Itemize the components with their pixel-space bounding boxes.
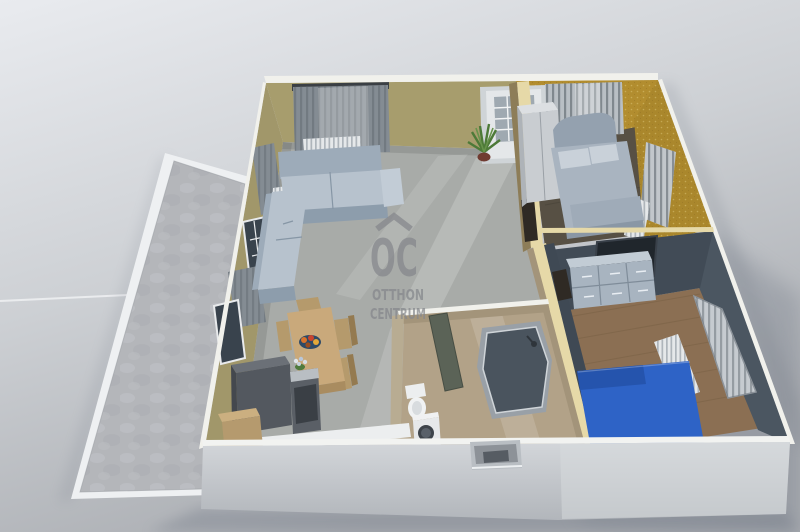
shower-cabin	[477, 321, 552, 419]
sofa-armrest	[380, 168, 404, 207]
watermark-logo-text: OC	[370, 229, 418, 289]
plant-pot	[478, 153, 491, 162]
watermark-line2: CENTRUM	[370, 305, 426, 323]
floorplan-3d-render: OC OTTHON CENTRUM	[0, 0, 800, 532]
watermark: OC OTTHON CENTRUM	[370, 216, 426, 323]
front-wall	[201, 436, 790, 520]
scene-canvas: OC OTTHON CENTRUM	[0, 0, 800, 532]
entrance-door-top	[483, 450, 509, 463]
entrance-recess	[470, 440, 522, 470]
watermark-line1: OTTHON	[372, 286, 424, 304]
oven-door	[294, 384, 318, 424]
bedroom-divider-top	[538, 227, 714, 233]
